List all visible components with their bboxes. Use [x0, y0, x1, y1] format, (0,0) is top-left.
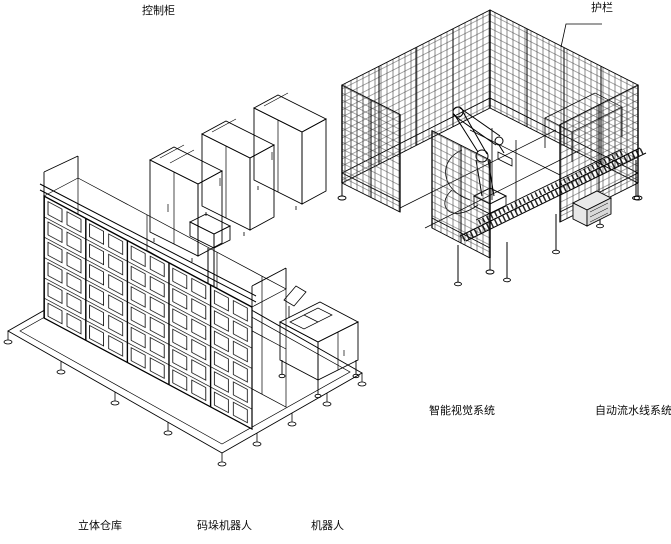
label-vision-system: 智能视觉系统 — [429, 405, 495, 418]
label-warehouse: 立体仓库 — [78, 520, 122, 533]
label-line-system: 自动流水线系统 — [595, 405, 671, 418]
label-fence: 护栏 — [591, 2, 613, 15]
robot-cell-drawing — [338, 10, 646, 286]
control-cabinets — [150, 93, 326, 262]
label-robot: 机器人 — [311, 520, 344, 533]
label-palletizing-robot: 码垛机器人 — [197, 520, 252, 533]
technical-drawing — [0, 0, 671, 544]
safety-fence-front — [342, 85, 638, 274]
storage-rack — [40, 184, 256, 429]
fence-leader-line — [561, 24, 602, 47]
warehouse-drawing — [4, 93, 366, 466]
label-control-cabinet: 控制柜 — [142, 5, 175, 18]
patent-figure: 控制柜 护栏 智能视觉系统 自动流水线系统 立体仓库 码垛机器人 机器人 — [0, 0, 671, 544]
loading-station — [279, 286, 359, 398]
